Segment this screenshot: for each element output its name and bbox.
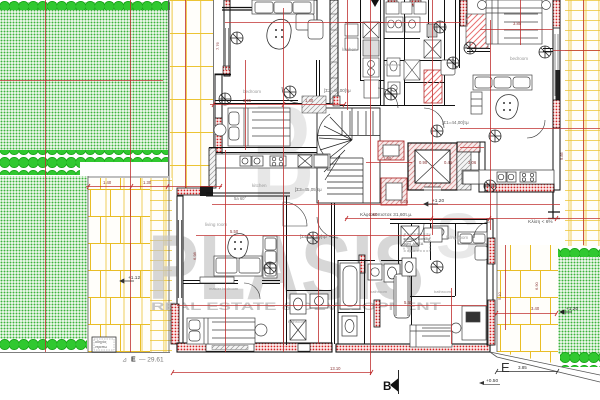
svg-text:bathroom: bathroom [370, 289, 388, 294]
svg-text:Κλφ.οκοπιστσε 31,60τ.μ.: Κλφ.οκοπιστσε 31,60τ.μ. [360, 212, 413, 218]
svg-text:[Σ2=46,00]τμ: [Σ2=46,00]τμ [324, 88, 351, 93]
svg-text:7.76: 7.76 [215, 41, 220, 50]
svg-text:3.40: 3.40 [531, 306, 540, 311]
svg-text:3.85: 3.85 [513, 21, 522, 26]
svg-text:⊿: ⊿ [122, 358, 127, 364]
svg-text:1.90: 1.90 [383, 156, 392, 161]
svg-text:[Σ1=44,00]τμ: [Σ1=44,00]τμ [442, 120, 469, 125]
svg-text:0.90: 0.90 [419, 160, 428, 165]
svg-text:3.95: 3.95 [243, 98, 252, 103]
svg-text:1.40: 1.40 [103, 180, 112, 185]
svg-text:5a 60°: 5a 60° [234, 196, 246, 201]
svg-text:1.40: 1.40 [305, 98, 314, 103]
svg-text:8.35: 8.35 [400, 199, 409, 204]
svg-text:9.85: 9.85 [559, 151, 564, 160]
svg-text:6.98: 6.98 [192, 251, 197, 260]
svg-text:5.50: 5.50 [369, 212, 378, 217]
svg-text:— 29.61: — 29.61 [139, 357, 164, 364]
svg-text:[Σ3=45,05]τμ: [Σ3=45,05]τμ [295, 187, 322, 192]
svg-text:5.50: 5.50 [404, 300, 413, 305]
svg-text:Κλίση < 6%: Κλίση < 6% [528, 219, 553, 225]
svg-text:B: B [383, 381, 391, 393]
svg-text:οδηγός: οδηγός [95, 340, 107, 344]
svg-text:ορτί. ΑΜΕΑ: ορτί. ΑΜΕΑ [404, 242, 424, 246]
svg-text:E: E [501, 360, 510, 375]
svg-text:13.10: 13.10 [330, 366, 341, 371]
svg-text:bathroom: bathroom [434, 289, 452, 294]
svg-text:kitchen: kitchen [252, 183, 267, 188]
svg-text:+1.20: +1.20 [432, 198, 444, 204]
svg-text:μόνιμες ωοτιδίρ: μόνιμες ωοτιδίρ [404, 237, 431, 241]
svg-text:kitchen: kitchen [342, 47, 357, 52]
svg-text:bathroom: bathroom [384, 62, 402, 67]
svg-text:bedroom: bedroom [510, 56, 528, 61]
svg-text:0.45: 0.45 [444, 160, 453, 165]
svg-text:master bedroom: master bedroom [209, 286, 239, 291]
svg-text:bathroom: bathroom [288, 319, 306, 324]
svg-text:5.50: 5.50 [230, 229, 239, 234]
svg-text:+1.20: +1.20 [566, 306, 578, 312]
svg-text:3.85: 3.85 [518, 365, 527, 370]
svg-text:ντρεπω: ντρεπω [95, 345, 107, 349]
svg-text:+0.50: +0.50 [486, 378, 498, 384]
svg-text:6.90: 6.90 [534, 281, 539, 290]
svg-text:E: E [131, 357, 136, 364]
svg-text:3.06: 3.06 [468, 160, 477, 165]
svg-text:living room: living room [446, 235, 468, 240]
svg-text:[Σ4=44,00]τμ: [Σ4=44,00]τμ [300, 234, 327, 239]
svg-text:1.30: 1.30 [143, 180, 152, 185]
svg-text:+1.12: +1.12 [128, 275, 140, 281]
svg-text:living room: living room [205, 222, 227, 227]
svg-text:5.10: 5.10 [497, 291, 502, 300]
